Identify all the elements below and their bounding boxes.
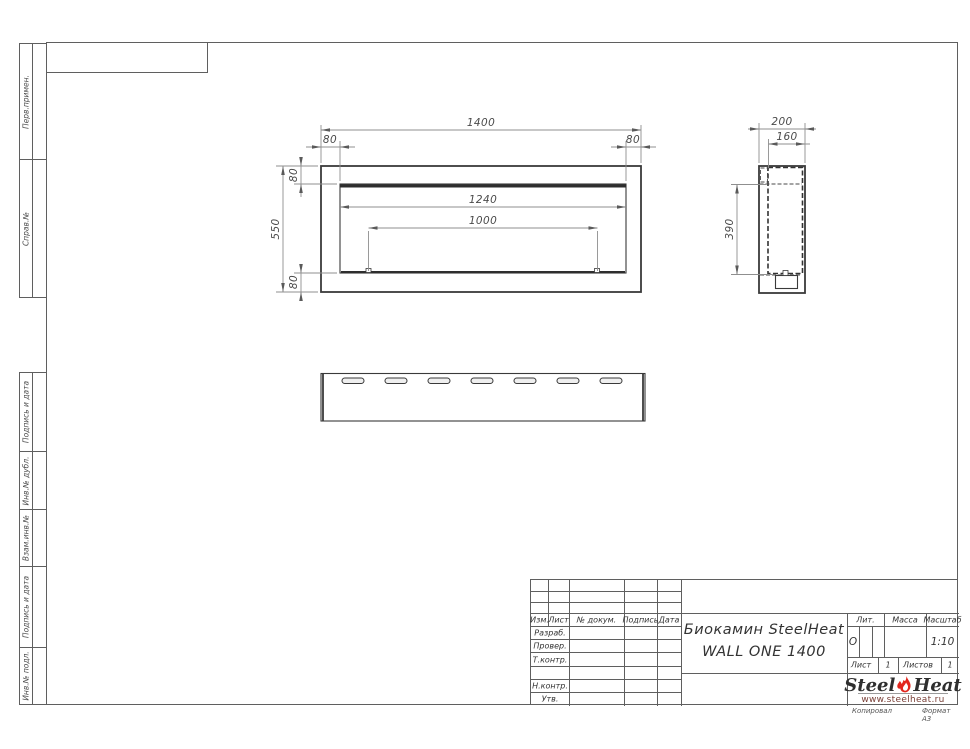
designation-box xyxy=(46,42,208,73)
drawing-sheet: 1400 80 80 550 80 xyxy=(0,0,970,749)
stamp-cell-vzam-inv: Взам.инв.№ xyxy=(19,509,47,567)
stamp-cell-label: Подпись и дата xyxy=(22,381,31,443)
tb-mass-label: Масса xyxy=(892,615,918,624)
tb-header-sign: Подпись xyxy=(623,615,659,624)
tb-sheet-value: 1 xyxy=(885,661,890,670)
flame-icon xyxy=(896,674,912,695)
stamp-cell-label: Справ.№ xyxy=(22,211,31,245)
tb-scale-label: Масштаб xyxy=(923,615,961,624)
tb-row-razrab: Разраб. xyxy=(534,628,565,637)
tb-row-tkontr: Т.контр. xyxy=(533,655,568,664)
tb-header-izm: Изм. xyxy=(530,615,549,624)
tb-row-utv: Утв. xyxy=(542,695,559,704)
stamp-cell-podpis-data-2: Подпись и дата xyxy=(19,566,47,648)
tb-header-doc: № докум. xyxy=(577,615,616,624)
stamp-cell-divider: Подпись и дата xyxy=(20,373,33,451)
tb-sheet-label: Лист xyxy=(851,661,871,670)
tb-lit-value: О xyxy=(849,636,857,648)
stamp-cell-label: Инв.№ дубл. xyxy=(22,456,31,505)
stamp-cell-label: Взам.инв.№ xyxy=(22,515,31,561)
website-url: www.steelheat.ru xyxy=(858,693,947,705)
format-note: Формат А3 xyxy=(922,707,954,723)
tb-lit-label: Лит. xyxy=(856,615,874,624)
stamp-cell-divider: Инв.№ дубл. xyxy=(20,452,33,509)
stamp-cell-label: Подпись и дата xyxy=(22,576,31,638)
tb-header-date: Дата xyxy=(659,615,680,624)
tb-sheets-label: Листов xyxy=(903,661,933,670)
tb-row-prover: Провер. xyxy=(533,641,566,650)
tb-sheets-value: 1 xyxy=(947,661,952,670)
tb-header-list: Лист xyxy=(548,615,568,624)
stamp-cell-divider: Перв.примен. xyxy=(20,44,33,159)
stamp-cell-label: Инв.№ подл. xyxy=(22,651,31,700)
stamp-cell-podpis-data-1: Подпись и дата xyxy=(19,372,47,452)
copy-note: Копировал xyxy=(852,707,892,715)
stamp-cell-divider: Инв.№ подл. xyxy=(20,648,33,704)
stamp-cell-divider: Справ.№ xyxy=(20,160,33,297)
company-logo: Steel Heat www.steelheat.ru xyxy=(847,673,959,706)
stamp-cell-label: Перв.примен. xyxy=(22,75,31,129)
brand-row: Steel Heat xyxy=(844,674,962,695)
tb-scale-value: 1:10 xyxy=(931,636,955,648)
stamp-cell-divider: Подпись и дата xyxy=(20,567,33,647)
tb-row-nkontr: Н.контр. xyxy=(532,681,568,690)
stamp-cell-perv-primen: Перв.примен. xyxy=(19,43,47,160)
stamp-cell-inv-dubl: Инв.№ дубл. xyxy=(19,451,47,510)
product-name-line2: WALL ONE 1400 xyxy=(702,644,826,660)
stamp-cell-inv-podl: Инв.№ подл. xyxy=(19,647,47,705)
title-block: Изм. Лист № докум. Подпись Дата Разраб. … xyxy=(530,579,958,705)
stamp-cell-divider: Взам.инв.№ xyxy=(20,510,33,566)
product-name-line1: Биокамин SteelHeat xyxy=(684,622,845,638)
stamp-cell-sprav-no: Справ.№ xyxy=(19,159,47,298)
